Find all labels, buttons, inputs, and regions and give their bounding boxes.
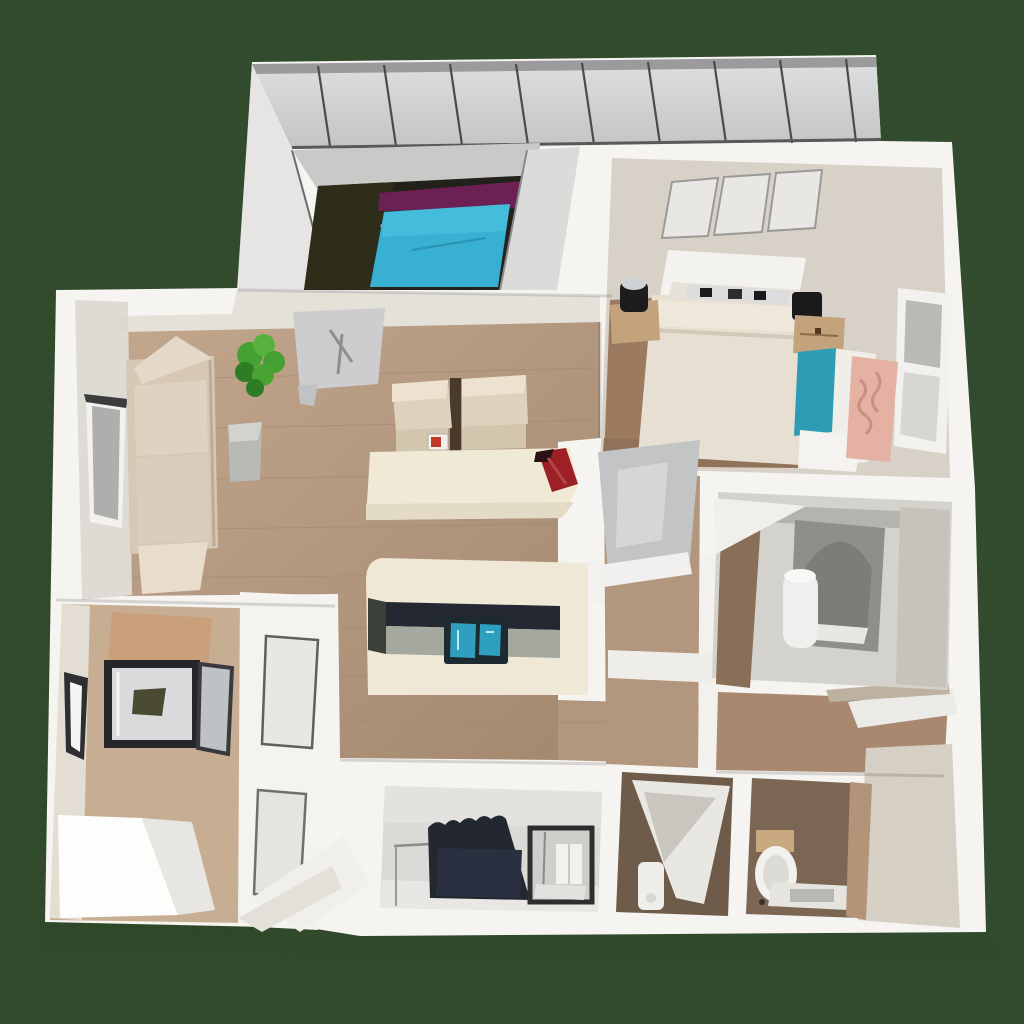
chair-post — [450, 378, 461, 454]
cabinet-item — [132, 688, 166, 716]
label-art — [431, 437, 441, 447]
bathroom — [712, 492, 952, 690]
side-table-top — [228, 422, 262, 442]
corner-room-wall — [858, 744, 960, 928]
storage-room — [50, 592, 370, 932]
teal-double-sink — [444, 616, 508, 664]
teal-armchair — [794, 348, 898, 472]
shower-floor — [534, 884, 586, 900]
cabinet-side-glass — [198, 664, 232, 754]
floorplan-render — [0, 0, 1024, 1024]
chair-label — [428, 434, 448, 450]
lamp-top — [622, 278, 646, 290]
glass-shower-cabinet — [530, 828, 592, 902]
leaning-gray-door — [598, 440, 700, 587]
skylight — [714, 174, 770, 235]
partition-panel-1 — [262, 636, 318, 748]
cylinder-top — [784, 569, 816, 583]
skylight — [768, 170, 822, 231]
side-window-pane-bottom — [900, 372, 940, 442]
sink-left — [450, 623, 476, 658]
double-bed — [638, 250, 812, 465]
slot-light — [70, 682, 82, 752]
sofa-cushion-1 — [134, 380, 208, 456]
window-slot — [64, 672, 88, 760]
leaf — [246, 379, 264, 397]
table-front — [366, 502, 574, 520]
sink-right — [479, 624, 501, 656]
living-window — [84, 394, 128, 528]
skylight — [662, 178, 718, 238]
armchair-seat — [794, 348, 836, 436]
cabinet-top-box — [108, 612, 212, 668]
sofa-cushion-2 — [136, 454, 210, 544]
leaf — [235, 362, 255, 382]
sofa-chaise — [138, 542, 208, 594]
counter-left-shade — [368, 598, 386, 654]
l-shaped-sofa — [126, 336, 218, 594]
chair-right-front — [462, 424, 526, 450]
tissue-tray — [768, 882, 852, 910]
cylinder-mark — [646, 893, 656, 903]
white-cylinder — [783, 572, 818, 648]
shelf-item — [754, 291, 766, 300]
door-panel — [616, 462, 668, 548]
media-room-roof — [252, 57, 881, 149]
floorplan-svg — [0, 0, 1024, 1024]
white-chest — [58, 815, 215, 918]
tray-well — [790, 889, 834, 902]
shelf-item — [728, 289, 742, 299]
three-skylights — [662, 170, 822, 238]
appliance-front — [436, 848, 522, 898]
side-window-pane-top — [904, 300, 942, 368]
bathroom-right-wall — [896, 507, 950, 688]
bedroom — [600, 158, 952, 478]
side-window — [894, 288, 952, 454]
floor-speck — [759, 899, 765, 905]
pink-blanket — [846, 356, 898, 462]
shelf-item — [700, 288, 712, 297]
drawer-knob — [815, 328, 821, 334]
window-pane — [92, 406, 120, 520]
laundry-room — [380, 786, 602, 912]
gray-side-table — [228, 422, 262, 482]
